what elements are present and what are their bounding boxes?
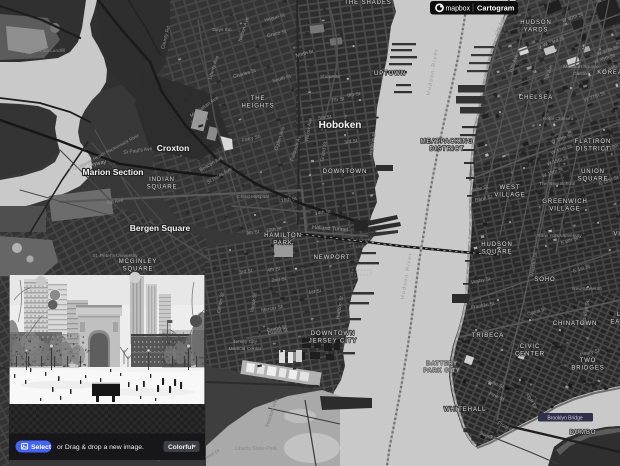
- svg-text:Medical Center: Medical Center: [229, 346, 262, 352]
- svg-text:New Museum: New Museum: [572, 286, 602, 292]
- svg-text:VILLAGE: VILLAGE: [494, 192, 525, 198]
- svg-text:Malanka Landfill: Malanka Landfill: [31, 48, 66, 54]
- svg-text:Hoboken: Hoboken: [319, 120, 362, 131]
- svg-text:Hotel Chelsea: Hotel Chelsea: [543, 116, 574, 122]
- svg-text:Brooklyn Bridge: Brooklyn Bridge: [547, 416, 583, 422]
- svg-text:YARDS: YARDS: [524, 27, 549, 33]
- svg-text:HUDSON: HUDSON: [520, 20, 551, 26]
- svg-text:SOHO: SOHO: [534, 277, 555, 283]
- svg-text:GREENWICH: GREENWICH: [542, 199, 587, 205]
- svg-text:MEATPACKING: MEATPACKING: [421, 139, 474, 145]
- svg-text:UPTOWN: UPTOWN: [374, 71, 406, 77]
- svg-text:Colorful: Colorful: [168, 444, 193, 451]
- svg-text:CENTER: CENTER: [515, 351, 545, 357]
- svg-text:WEST: WEST: [500, 185, 521, 191]
- svg-text:WHITEHALL: WHITEHALL: [444, 407, 486, 413]
- svg-text:or Drag & drop a new image.: or Drag & drop a new image.: [57, 444, 144, 451]
- svg-text:CHELSEA: CHELSEA: [519, 95, 553, 101]
- svg-text:DOWNTOWN: DOWNTOWN: [323, 169, 367, 175]
- svg-text:St. Peter's University: St. Peter's University: [92, 253, 138, 259]
- svg-text:FLATIRON: FLATIRON: [575, 139, 611, 145]
- svg-text:DISTRICT: DISTRICT: [430, 146, 465, 152]
- svg-text:Christ Hospital: Christ Hospital: [237, 194, 269, 200]
- svg-text:CHINATOWN: CHINATOWN: [553, 321, 598, 327]
- svg-text:VILLAGE: VILLAGE: [549, 206, 580, 212]
- svg-text:THE SHADES: THE SHADES: [344, 0, 391, 6]
- svg-text:BRIDGES: BRIDGES: [571, 365, 604, 371]
- svg-text:Croxton: Croxton: [157, 143, 190, 153]
- svg-text:Cartogram: Cartogram: [477, 4, 515, 13]
- svg-text:HEIGHTS: HEIGHTS: [242, 103, 275, 109]
- svg-text:DUMBO: DUMBO: [570, 430, 597, 436]
- svg-text:Select: Select: [31, 444, 52, 451]
- svg-text:SQUARE: SQUARE: [147, 184, 178, 190]
- svg-text:VILLAGE: VILLAGE: [613, 231, 620, 237]
- svg-text:ShopRite: ShopRite: [320, 74, 340, 80]
- svg-text:SQUARE: SQUARE: [123, 266, 154, 272]
- svg-text:Garden: Garden: [573, 71, 590, 77]
- svg-text:DOWNTOWN: DOWNTOWN: [311, 331, 355, 337]
- svg-text:Madison Square: Madison Square: [563, 64, 599, 70]
- svg-text:mapbox: mapbox: [446, 5, 471, 12]
- svg-text:Marion Section: Marion Section: [83, 167, 144, 177]
- svg-text:SQUARE: SQUARE: [482, 249, 513, 255]
- svg-text:TWO: TWO: [580, 358, 597, 364]
- svg-text:Bergen Square: Bergen Square: [130, 223, 191, 233]
- svg-text:Days Inn: Days Inn: [212, 27, 232, 33]
- svg-text:INDIAN: INDIAN: [149, 177, 175, 183]
- svg-text:CIVIC: CIVIC: [520, 344, 541, 350]
- svg-text:Liberty State Park: Liberty State Park: [235, 446, 277, 452]
- svg-text:THE: THE: [251, 96, 266, 102]
- svg-text:NEWPORT: NEWPORT: [314, 255, 351, 261]
- svg-text:EAST SIDE: EAST SIDE: [610, 319, 620, 325]
- svg-text:BATTERY: BATTERY: [426, 361, 457, 367]
- svg-text:MCGINLEY: MCGINLEY: [119, 259, 158, 265]
- svg-text:PARK CITY: PARK CITY: [424, 368, 461, 374]
- svg-text:HUDSON: HUDSON: [481, 242, 512, 248]
- svg-text:JERSEY CITY: JERSEY CITY: [309, 338, 357, 344]
- svg-text:UNION: UNION: [581, 169, 605, 175]
- svg-text:Jersey City: Jersey City: [233, 339, 258, 345]
- svg-text:TRIBECA: TRIBECA: [472, 333, 504, 339]
